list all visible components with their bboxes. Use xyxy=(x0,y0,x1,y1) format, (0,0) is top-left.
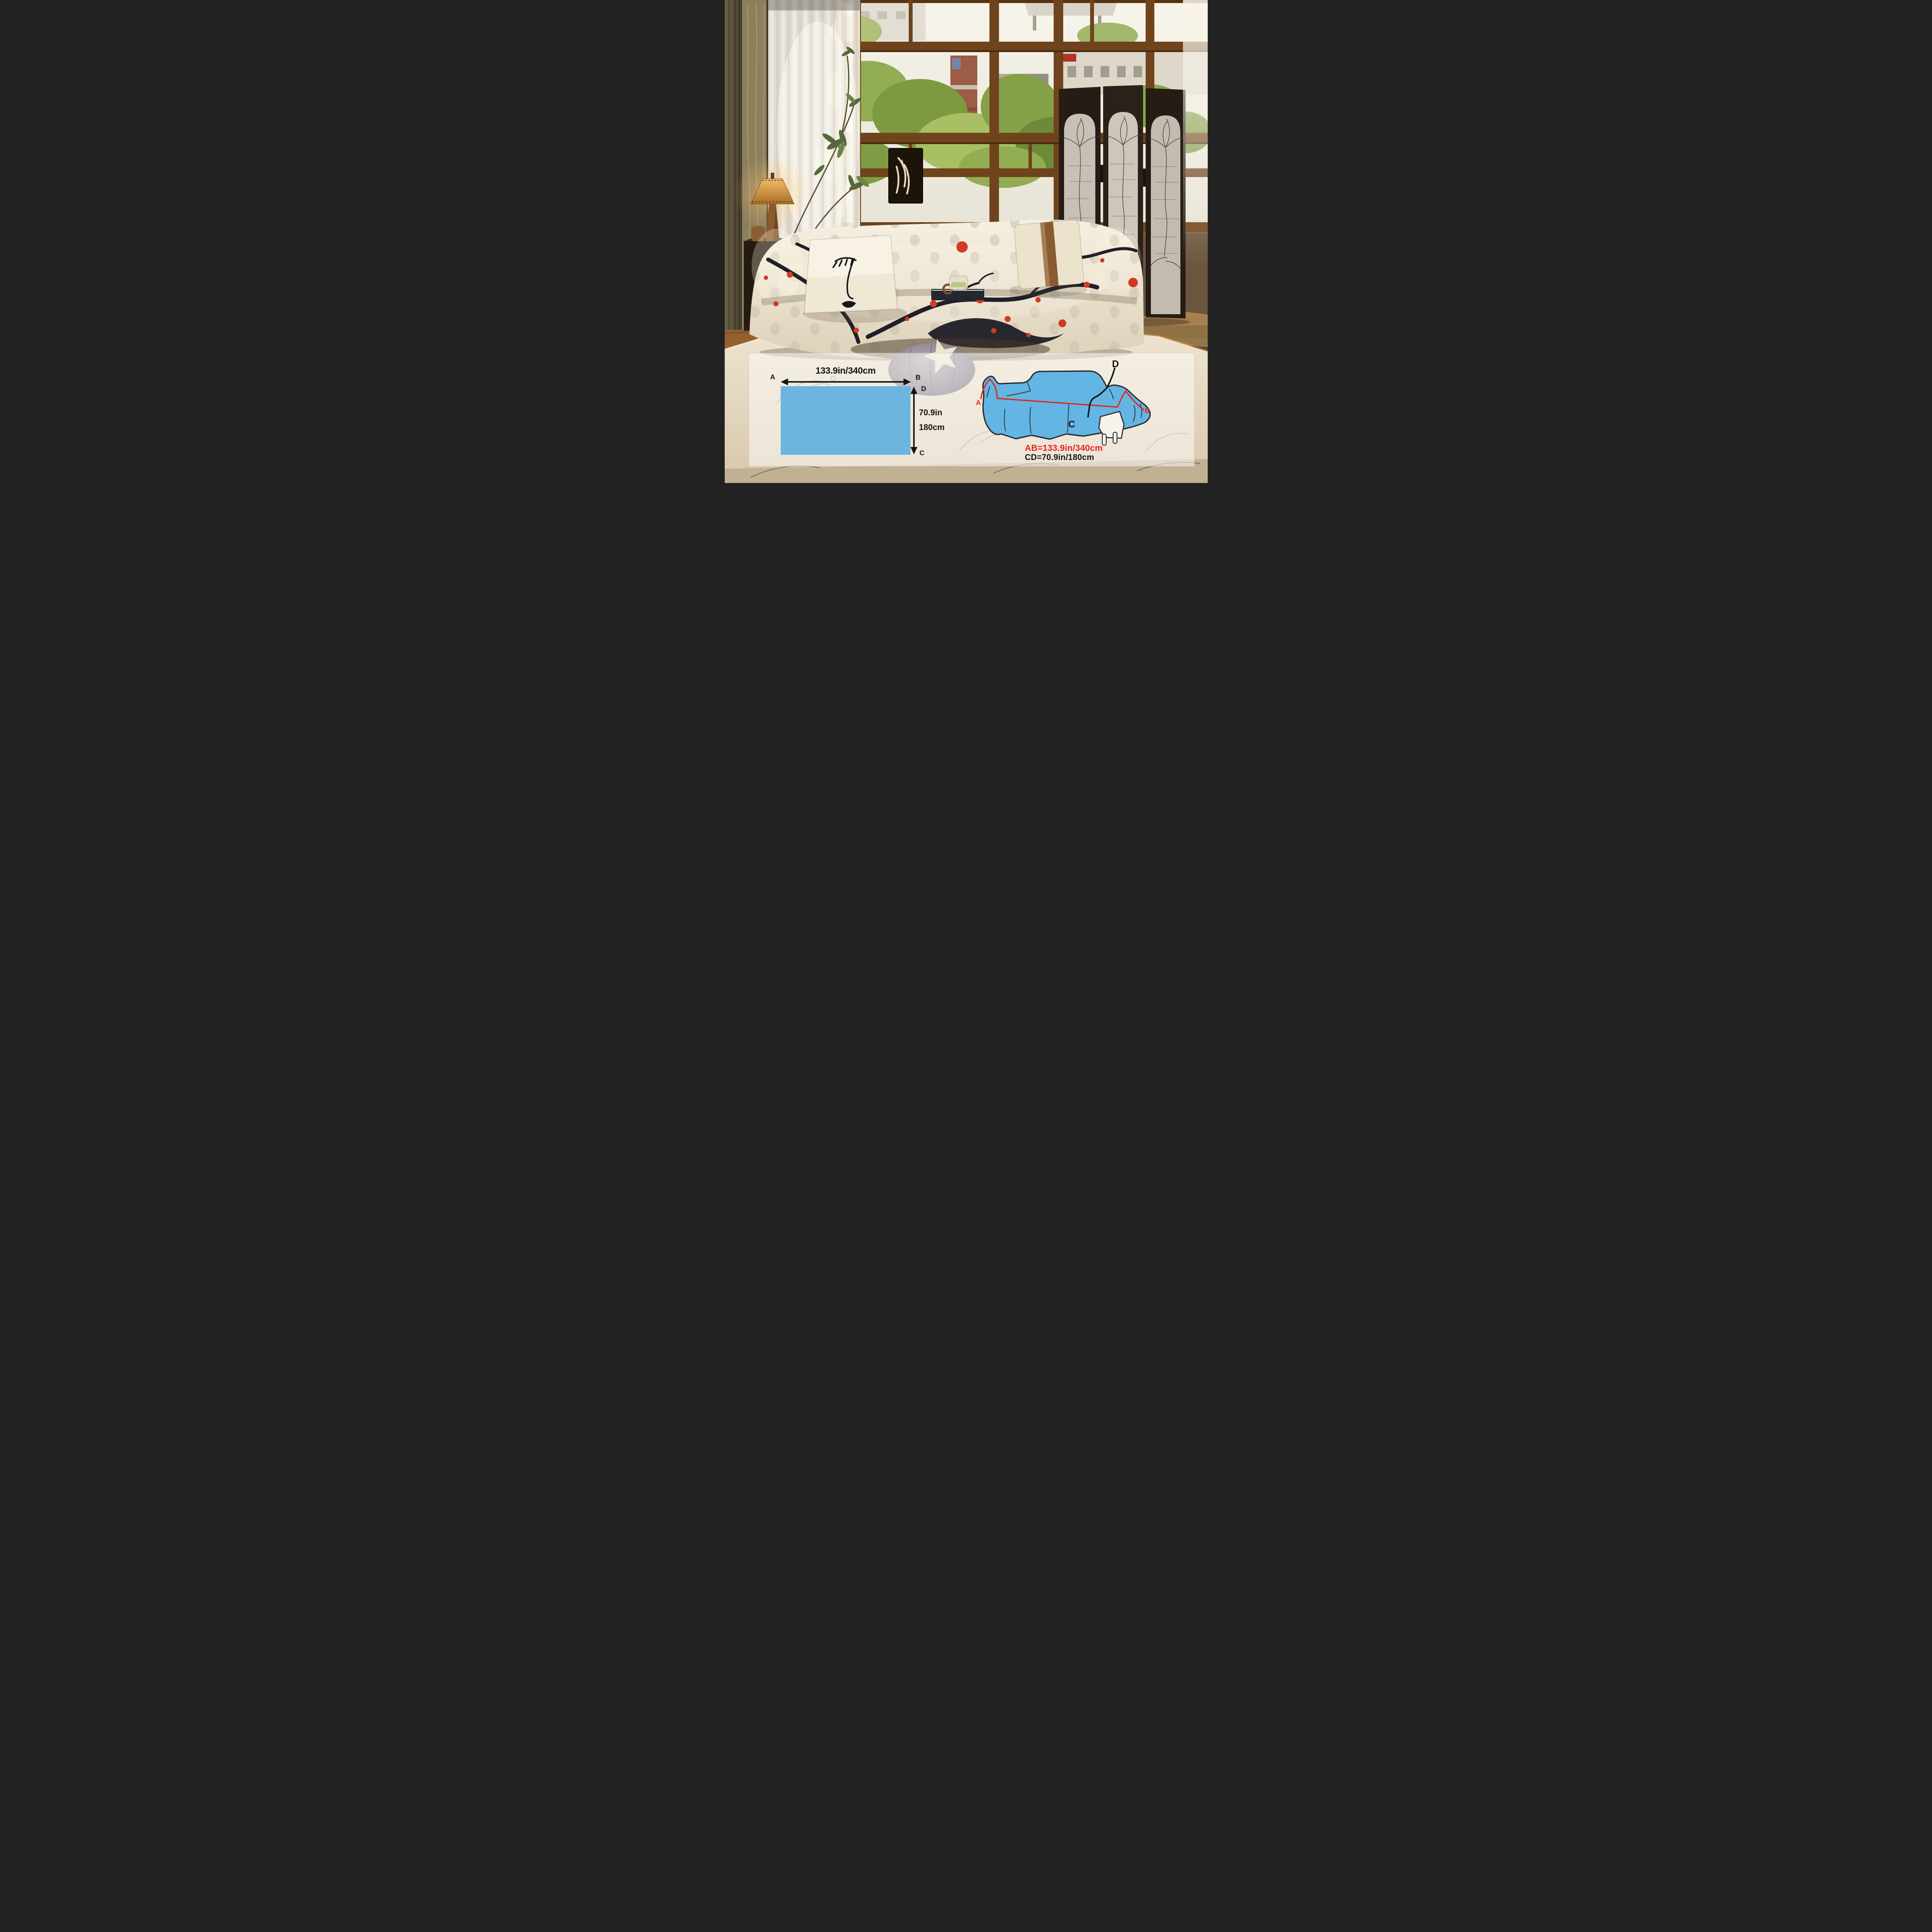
cd-measure-label: CD=70.9in/180cm xyxy=(1025,453,1094,463)
sofa-point-c: C xyxy=(1068,419,1075,430)
face-pillow xyxy=(804,235,897,313)
corner-label-b: B xyxy=(916,374,921,382)
width-dimension-label: 133.9in/340cm xyxy=(792,366,900,376)
height-dimension-cm: 180cm xyxy=(919,423,945,433)
sofa-cover-product-image: A B D C 133.9in/340cm 70.9in 180cm A B D… xyxy=(725,0,1208,483)
sofa-point-b: B xyxy=(1145,407,1150,415)
stripe-pillow xyxy=(1013,220,1084,289)
ab-measure-label: AB=133.9in/340cm xyxy=(1025,444,1103,453)
corner-label-d: D xyxy=(921,385,927,393)
sofa-point-d: D xyxy=(1112,358,1119,370)
corner-label-c: C xyxy=(920,450,925,457)
sofa-point-a: A xyxy=(976,399,981,407)
flat-sheet-rectangle xyxy=(781,386,910,455)
art-board xyxy=(889,148,923,203)
height-dimension-in: 70.9in xyxy=(919,408,943,418)
corner-label-a: A xyxy=(770,374,775,381)
curtain-right-sheer xyxy=(1183,0,1208,269)
